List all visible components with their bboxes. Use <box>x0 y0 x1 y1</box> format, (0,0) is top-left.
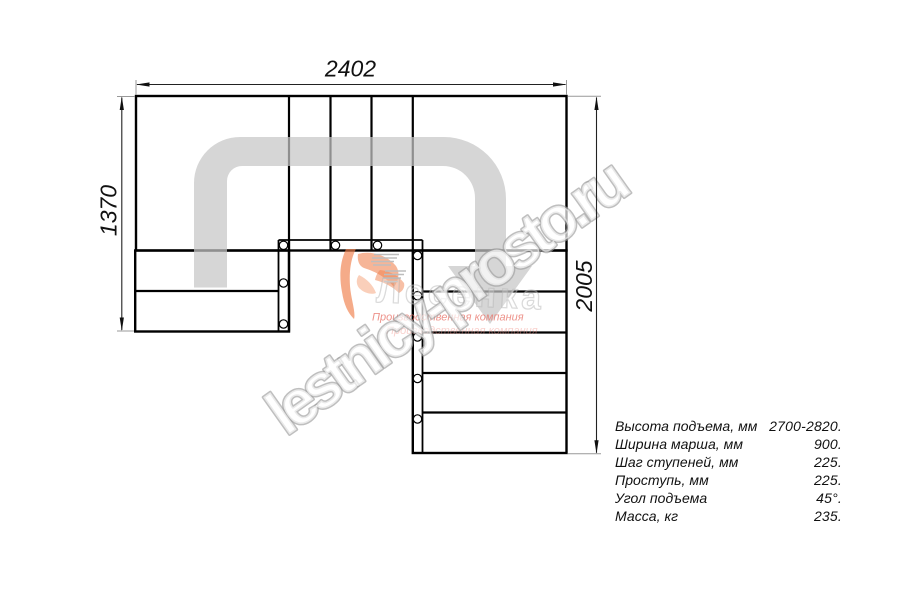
svg-text:Высота подъема, мм: Высота подъема, мм <box>615 418 758 434</box>
svg-text:1370: 1370 <box>96 185 122 236</box>
svg-text:2402: 2402 <box>324 56 376 82</box>
svg-text:Шаг ступеней, мм: Шаг ступеней, мм <box>615 454 739 470</box>
svg-text:45°.: 45°. <box>816 490 842 506</box>
svg-text:Ширина марша, мм: Ширина марша, мм <box>615 436 743 452</box>
svg-text:225.: 225. <box>813 454 842 470</box>
svg-text:Проступь, мм: Проступь, мм <box>615 472 709 488</box>
svg-text:225.: 225. <box>813 472 842 488</box>
svg-text:Масса, кг: Масса, кг <box>615 508 678 524</box>
svg-text:2005: 2005 <box>571 260 597 312</box>
svg-text:Угол подъема: Угол подъема <box>614 490 707 506</box>
svg-text:235.: 235. <box>813 508 842 524</box>
svg-text:2700-2820.: 2700-2820. <box>768 418 842 434</box>
svg-text:900.: 900. <box>814 436 842 452</box>
